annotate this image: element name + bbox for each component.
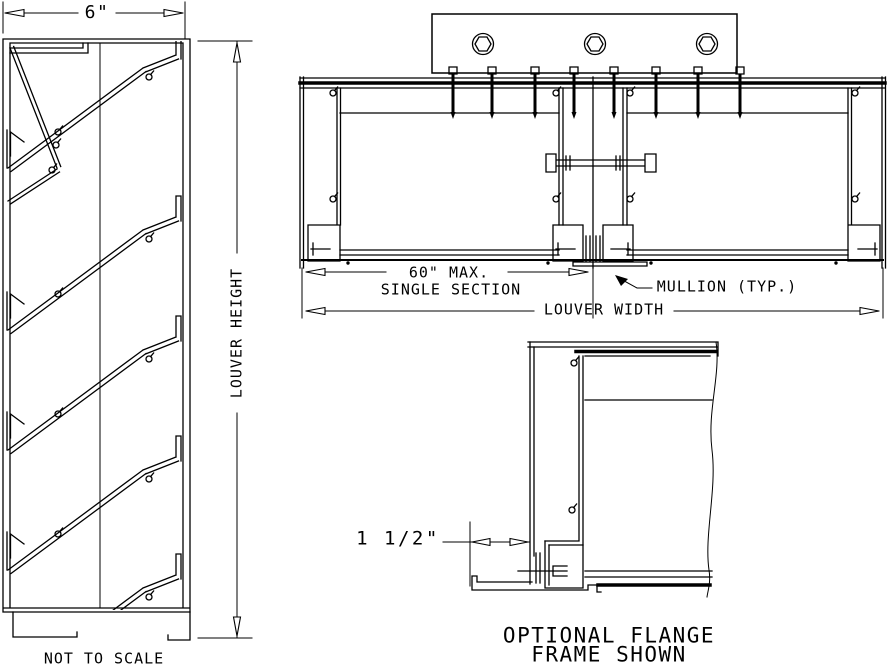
detail-caption-line2: FRAME SHOWN [531,645,687,666]
detail-head-cap [528,342,718,356]
flange-detail-view [443,342,718,597]
fastening-screws [449,67,744,119]
right-jamb [848,77,886,268]
drawing-linework [0,0,890,670]
dimension-louver-width: LOUVER WIDTH [544,303,664,318]
left-jamb [300,77,341,268]
detail-sill-box [518,541,583,588]
dimension-louver-height: LOUVER HEIGHT [230,268,245,398]
side-frame [3,39,190,640]
dimension-1-1-2-inch: 1 1/2" [356,530,440,549]
detail-jamb [530,342,583,584]
hex-bolt [585,34,606,55]
dimension-60in-max: 60" MAX. [409,266,489,281]
not-to-scale-note: NOT TO SCALE [44,652,164,667]
louver-blades [7,34,181,670]
mounting-plate [432,14,737,73]
break-line [707,342,717,597]
dimension-6-inch: 6" [85,4,110,22]
louver-technical-drawing: 6" LOUVER HEIGHT 60" MAX. SINGLE SECTION… [0,0,890,670]
flange-dimension-lines [443,522,530,586]
hex-bolt [473,34,494,55]
dimension-single-section: SINGLE SECTION [381,283,521,298]
mullion [546,77,656,268]
side-section-view [3,2,252,670]
callout-mullion-typ: MULLION (TYP.) [657,280,797,295]
detail-panel [585,342,717,597]
plan-section-view [300,14,886,318]
hex-bolt [697,34,718,55]
